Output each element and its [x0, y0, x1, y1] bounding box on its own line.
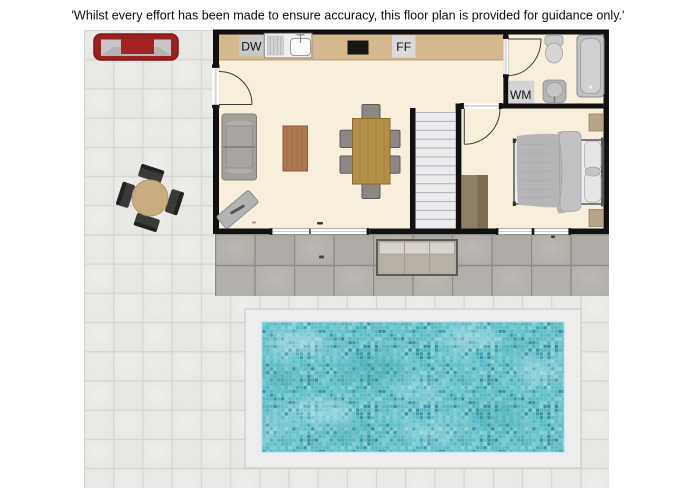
svg-text:DW: DW: [241, 40, 262, 54]
svg-text:'Whilst every effort has been: 'Whilst every effort has been made to en…: [72, 9, 625, 23]
svg-text:FF: FF: [396, 40, 411, 54]
svg-text:WM: WM: [510, 88, 531, 102]
